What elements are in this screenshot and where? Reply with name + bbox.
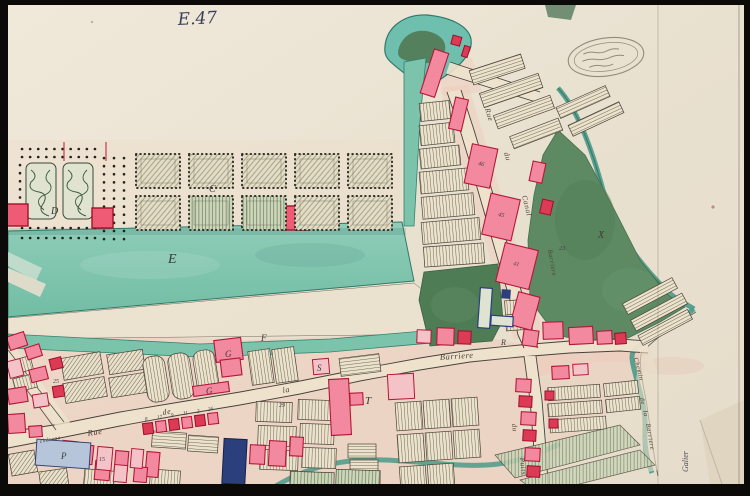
street-la: la: [282, 385, 291, 395]
large-red-building: [329, 379, 352, 436]
label-t: T: [365, 395, 372, 407]
label-s: S: [317, 363, 322, 373]
label-r: R: [500, 338, 506, 347]
plot-number: 23: [559, 245, 566, 252]
label-c: C: [209, 184, 216, 195]
plot-number: 15: [99, 457, 105, 463]
label-g2: G: [206, 386, 213, 396]
canal-pavilion: [92, 208, 113, 228]
corner-inscription: Galier: [681, 450, 690, 472]
plot-number: 26: [208, 406, 214, 413]
photographed-map-slide: D C E F G G S T R P X Rue de la Barriere…: [0, 0, 750, 496]
plot-number: 25: [53, 379, 59, 385]
navy-building: [222, 438, 247, 484]
label-x: X: [597, 230, 605, 241]
street-du-puits: du: [510, 423, 519, 432]
label-f: F: [260, 333, 267, 343]
plot-number: 29: [279, 403, 285, 409]
label-e: E: [167, 252, 177, 267]
sheet-number: E.47: [176, 8, 218, 30]
label-d: D: [50, 206, 59, 217]
plot-number: 17: [157, 414, 163, 421]
label-p: P: [60, 451, 67, 461]
building-t: [387, 373, 414, 399]
chemin-label-2: de: [638, 397, 646, 406]
label-g1: G: [225, 349, 232, 359]
plot-number: 11: [183, 410, 189, 417]
map-canvas: D C E F G G S T R P X Rue de la Barriere…: [0, 0, 750, 496]
